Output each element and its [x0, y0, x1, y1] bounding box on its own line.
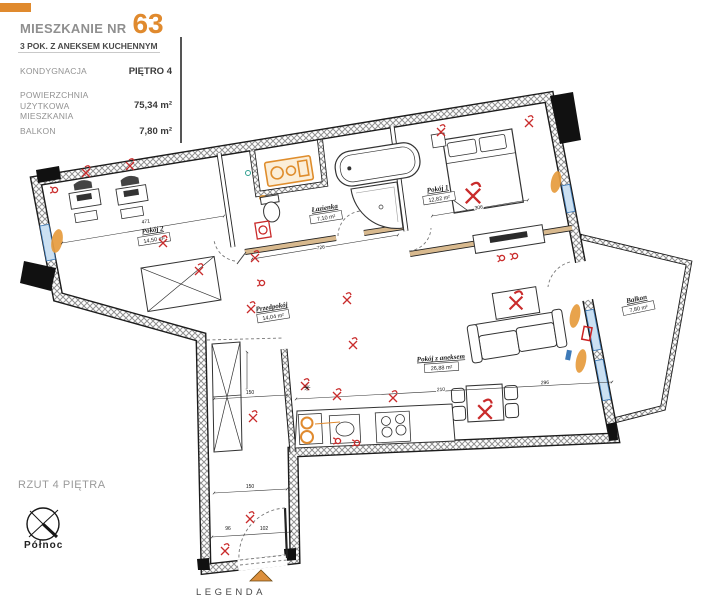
plan-view-label: RZUT 4 PIĘTRA	[18, 479, 106, 491]
dimension-label: 210	[437, 387, 446, 393]
title-label: MIESZKANIE NR	[20, 21, 126, 36]
kitchen-counter	[295, 404, 455, 448]
apartment-subtitle: 3 POK. Z ANEKSEM KUCHENNYM	[20, 41, 158, 51]
spec-value: 75,34 m²	[116, 100, 172, 111]
bed-icon	[443, 129, 524, 213]
spec-row-floor: KONDYGNACJA PIĘTRO 4	[20, 66, 172, 77]
dimension-label: 296	[541, 380, 550, 386]
spec-label: BALKON	[20, 126, 116, 137]
legend-label: LEGENDA	[196, 587, 266, 598]
entrance-marker-icon	[250, 570, 272, 581]
header-divider	[180, 37, 182, 143]
spec-value: PIĘTRO 4	[116, 66, 172, 77]
spec-label: POWIERZCHNIA UŻYTKOWA MIESZKANIA	[20, 90, 116, 122]
dimension-label: 102	[260, 526, 269, 532]
subtitle-divider	[18, 52, 160, 53]
compass-label: Północ	[24, 540, 63, 551]
dimension-label: 150	[246, 390, 255, 396]
spec-label: KONDYGNACJA	[20, 66, 116, 77]
compass-icon	[27, 508, 59, 540]
dimension-label: 96	[225, 526, 231, 532]
floorplan-page: MAKLER	[0, 0, 711, 602]
spec-row-area: POWIERZCHNIA UŻYTKOWA MIESZKANIA 75,34 m…	[20, 90, 172, 122]
vent-symbol: ✳	[303, 383, 311, 393]
apartment-number: 63	[132, 10, 163, 38]
dimension-label: 150	[246, 484, 255, 490]
spec-value: 7,80 m²	[116, 126, 172, 137]
spec-row-balcony: BALKON 7,80 m²	[20, 126, 172, 137]
wardrobe-icon	[212, 342, 242, 452]
apartment-title: MIESZKANIE NR 63	[20, 10, 164, 38]
